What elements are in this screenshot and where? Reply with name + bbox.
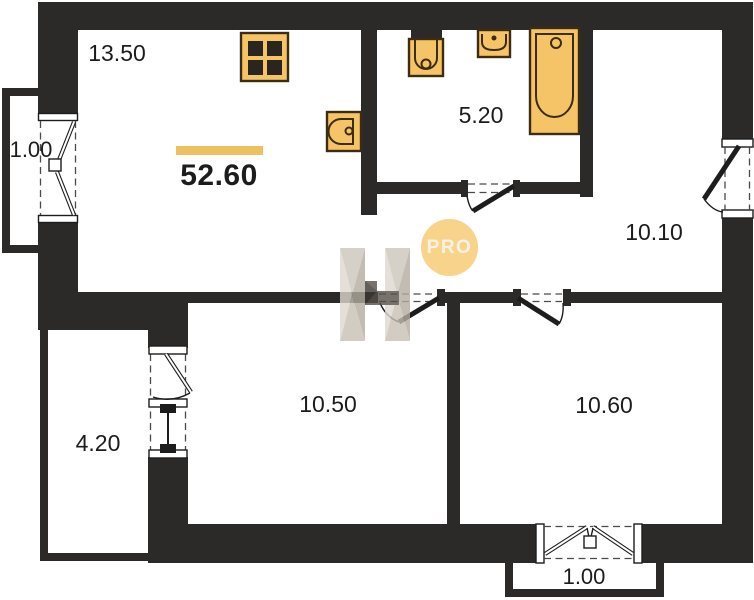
kitchen-sink-icon bbox=[327, 112, 361, 151]
room-area-label-bottom-right: 10.60 bbox=[559, 393, 649, 417]
floor-plan-canvas bbox=[0, 0, 754, 600]
toilet-icon bbox=[409, 39, 443, 76]
developer-logo-watermark bbox=[340, 248, 410, 341]
window-handle-icon bbox=[584, 536, 596, 548]
washbasin-icon bbox=[478, 30, 510, 57]
window-balcony-4-20 bbox=[149, 354, 187, 458]
window-bottom-balcony bbox=[536, 524, 642, 563]
bathtub-icon bbox=[530, 28, 579, 134]
room-area-label-balcony-bottom: 1.00 bbox=[539, 565, 629, 588]
door-balcony-right bbox=[704, 139, 753, 218]
door-balcony-4-20 bbox=[149, 346, 191, 399]
room-area-label-top-right: 10.10 bbox=[609, 220, 699, 244]
room-area-label-balcony-left: 1.00 bbox=[0, 138, 76, 161]
pro-watermark-badge: PRO bbox=[421, 219, 478, 276]
door-bathroom bbox=[467, 184, 514, 211]
floor-plan: 52.60 13.50 5.20 10.10 10.50 10.60 1.00 … bbox=[0, 0, 754, 600]
window-left-balcony bbox=[39, 114, 78, 223]
room-area-label-kitchen-living: 13.50 bbox=[72, 41, 162, 65]
total-area-accent-bar bbox=[176, 146, 263, 155]
room-area-label-balcony-bottom-left: 4.20 bbox=[53, 431, 143, 455]
total-area-label: 52.60 bbox=[169, 160, 269, 192]
room-area-label-bathroom: 5.20 bbox=[436, 103, 526, 127]
stove-icon bbox=[241, 33, 288, 81]
door-room-10-60 bbox=[518, 294, 563, 324]
room-area-label-bottom-middle: 10.50 bbox=[283, 392, 373, 416]
